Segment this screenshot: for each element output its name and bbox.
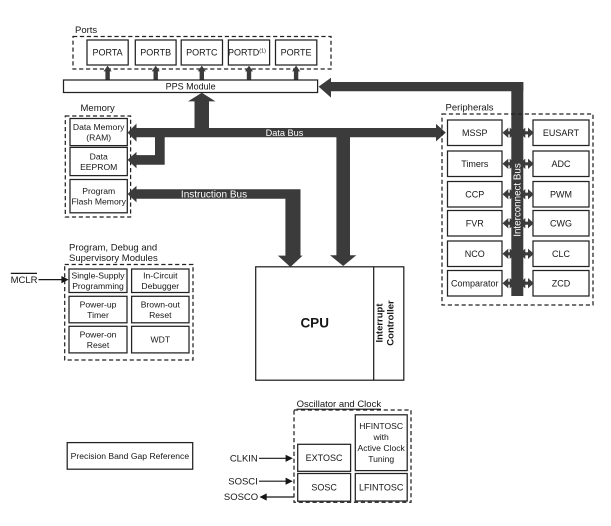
svg-text:Timers: Timers — [461, 159, 489, 169]
svg-text:PPS Module: PPS Module — [166, 81, 216, 91]
svg-text:EUSART: EUSART — [543, 128, 580, 138]
svg-text:Precision Band Gap Reference: Precision Band Gap Reference — [71, 451, 190, 461]
svg-text:Peripherals: Peripherals — [446, 103, 494, 114]
svg-text:MSSP: MSSP — [462, 128, 488, 138]
svg-text:SOSCI: SOSCI — [228, 476, 258, 487]
svg-text:(RAM): (RAM) — [86, 132, 111, 142]
svg-text:CLKIN: CLKIN — [230, 453, 258, 464]
svg-text:Power-up: Power-up — [80, 299, 117, 309]
svg-text:PORTA: PORTA — [93, 48, 123, 58]
svg-text:Power-on: Power-on — [80, 329, 117, 339]
svg-text:Data Memory: Data Memory — [73, 122, 125, 132]
svg-text:Supervisory Modules: Supervisory Modules — [69, 253, 158, 264]
svg-text:PORTC: PORTC — [186, 48, 218, 58]
svg-text:Tuning: Tuning — [368, 454, 394, 464]
svg-text:SOSCO: SOSCO — [224, 492, 258, 503]
svg-text:Interrupt: Interrupt — [374, 303, 385, 343]
svg-text:Controller: Controller — [386, 300, 397, 346]
svg-text:CCP: CCP — [465, 189, 484, 199]
svg-text:LFINTOSC: LFINTOSC — [359, 482, 404, 492]
svg-text:Comparator: Comparator — [451, 278, 499, 288]
svg-text:WDT: WDT — [151, 335, 171, 345]
svg-text:FVR: FVR — [466, 218, 485, 228]
svg-text:PORTE: PORTE — [281, 48, 312, 58]
svg-text:Instruction Bus: Instruction Bus — [181, 189, 247, 200]
svg-text:SOSC: SOSC — [311, 483, 337, 493]
svg-text:Flash Memory: Flash Memory — [71, 196, 126, 206]
svg-text:MCLR: MCLR — [11, 275, 38, 286]
svg-text:PORTB: PORTB — [140, 48, 171, 58]
svg-text:EXTOSC: EXTOSC — [306, 453, 343, 463]
svg-text:Oscillator and Clock: Oscillator and Clock — [297, 399, 382, 410]
svg-text:Active Clock: Active Clock — [358, 443, 406, 453]
svg-text:Program: Program — [82, 186, 115, 196]
svg-text:Program, Debug and: Program, Debug and — [69, 243, 157, 254]
svg-text:Reset: Reset — [87, 340, 110, 350]
svg-text:HFINTOSC: HFINTOSC — [359, 421, 403, 431]
svg-text:Reset: Reset — [149, 310, 172, 320]
svg-text:CLC: CLC — [552, 249, 571, 259]
svg-text:Data: Data — [90, 151, 108, 161]
svg-text:ADC: ADC — [551, 159, 571, 169]
svg-text:with: with — [373, 432, 390, 442]
svg-text:Programming: Programming — [72, 281, 124, 291]
svg-text:NCO: NCO — [465, 249, 485, 259]
svg-text:EEPROM: EEPROM — [80, 162, 117, 172]
svg-text:Single-Supply: Single-Supply — [71, 271, 125, 281]
svg-text:Memory: Memory — [81, 103, 116, 114]
svg-text:Ports: Ports — [75, 25, 97, 36]
svg-text:CWG: CWG — [550, 218, 572, 228]
svg-text:Timer: Timer — [87, 310, 109, 320]
svg-text:Interconnect Bus: Interconnect Bus — [513, 163, 524, 237]
svg-text:Data Bus: Data Bus — [266, 128, 304, 138]
svg-text:Brown-out: Brown-out — [141, 299, 181, 309]
svg-text:ZCD: ZCD — [552, 278, 571, 288]
svg-text:CPU: CPU — [300, 316, 329, 331]
svg-text:Debugger: Debugger — [141, 281, 179, 291]
svg-text:In-Circuit: In-Circuit — [143, 271, 178, 281]
svg-text:PWM: PWM — [550, 189, 572, 199]
